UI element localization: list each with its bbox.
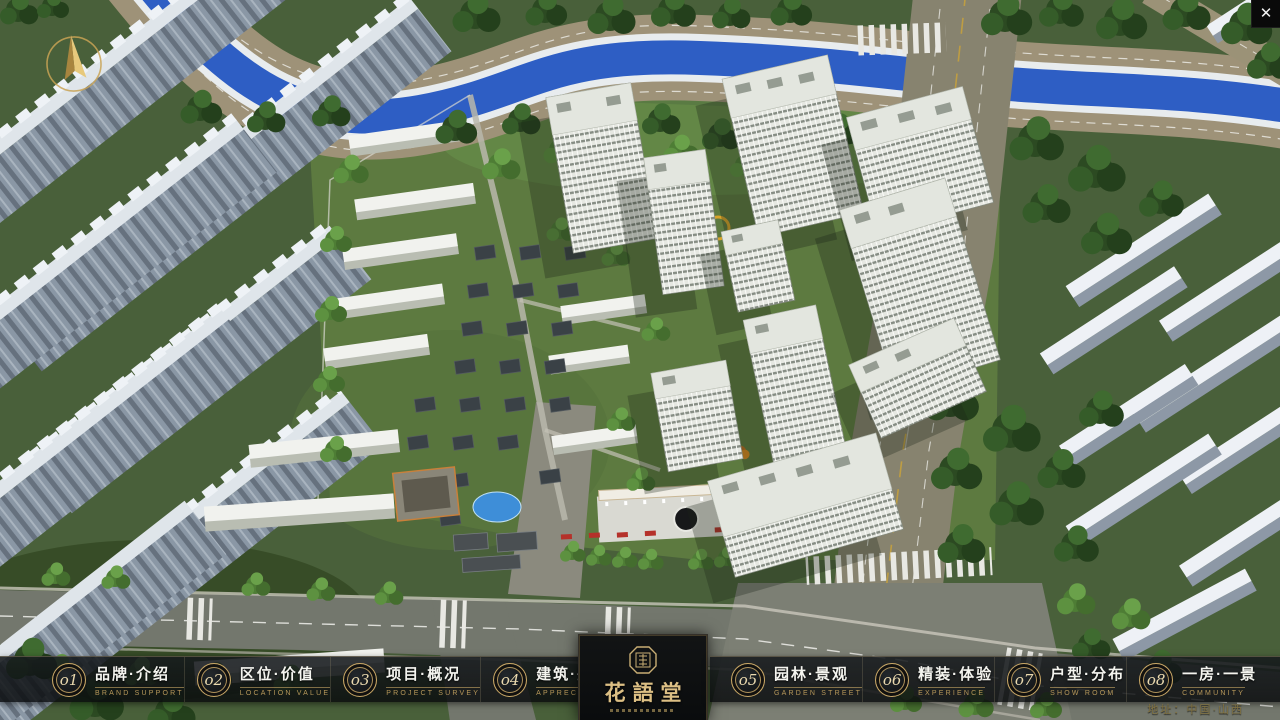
menu-number-badge: o5 <box>731 663 765 697</box>
menu-item-subtitle: EXPERIENCE <box>918 687 985 697</box>
menu-item-location-value[interactable]: o2 区位·价值LOCATION VALUE <box>184 657 330 702</box>
logo-tagline-rule <box>610 709 676 712</box>
bottom-menu-right: o5 园林·景观GARDEN STREET o6 精装·体验EXPERIENCE… <box>710 656 1280 702</box>
menu-number-badge: o4 <box>493 663 527 697</box>
site-aerial-map[interactable] <box>0 0 1280 720</box>
close-button[interactable]: ✕ <box>1251 0 1280 28</box>
menu-number-badge: o7 <box>1007 663 1041 697</box>
menu-item-subtitle: COMMUNITY <box>1182 687 1245 697</box>
menu-number-badge: o1 <box>52 663 86 697</box>
menu-item-brand-intro[interactable]: o1 品牌·介绍BRAND SUPPORT <box>40 657 184 702</box>
menu-item-label: 区位·价值 <box>240 663 315 684</box>
menu-item-subtitle: BRAND SUPPORT <box>95 687 184 697</box>
menu-item-floorplan-distribution[interactable]: o7 户型·分布SHOW ROOM <box>994 657 1126 702</box>
menu-item-label: 园林·景观 <box>774 663 849 684</box>
menu-item-room-view[interactable]: o8 一房·一景COMMUNITY <box>1126 657 1258 702</box>
project-address: 地址：中国·山西 <box>1147 701 1244 717</box>
menu-number-badge: o8 <box>1139 663 1173 697</box>
menu-item-label: 项目·概况 <box>386 663 461 684</box>
logo-seal-icon <box>628 645 658 675</box>
menu-number-badge: o2 <box>197 663 231 697</box>
menu-item-interior-experience[interactable]: o6 精装·体验EXPERIENCE <box>862 657 994 702</box>
menu-item-label: 精装·体验 <box>918 663 993 684</box>
menu-item-garden-landscape[interactable]: o5 园林·景观GARDEN STREET <box>719 657 862 702</box>
menu-item-subtitle: LOCATION VALUE <box>240 687 330 697</box>
menu-number-badge: o3 <box>343 663 377 697</box>
presentation-window: ✕ o1 品牌·介绍BRAND SUPPORT o2 区位·价值LOCATION… <box>0 0 1280 720</box>
menu-item-project-overview[interactable]: o3 项目·概况PROJECT SURVEY <box>330 657 480 702</box>
close-icon: ✕ <box>1260 6 1273 21</box>
menu-item-subtitle: PROJECT SURVEY <box>386 687 480 697</box>
menu-item-subtitle: SHOW ROOM <box>1050 687 1115 697</box>
menu-item-label: 一房·一景 <box>1182 663 1257 684</box>
menu-item-subtitle: GARDEN STREET <box>774 687 862 697</box>
menu-number-badge: o6 <box>875 663 909 697</box>
project-logo-panel[interactable]: 花語堂 <box>578 634 708 720</box>
project-logo-title: 花語堂 <box>605 677 689 707</box>
bottom-menu-left: o1 品牌·介绍BRAND SUPPORT o2 区位·价值LOCATION V… <box>0 656 616 702</box>
menu-item-label: 户型·分布 <box>1050 663 1125 684</box>
menu-item-label: 品牌·介绍 <box>95 663 170 684</box>
